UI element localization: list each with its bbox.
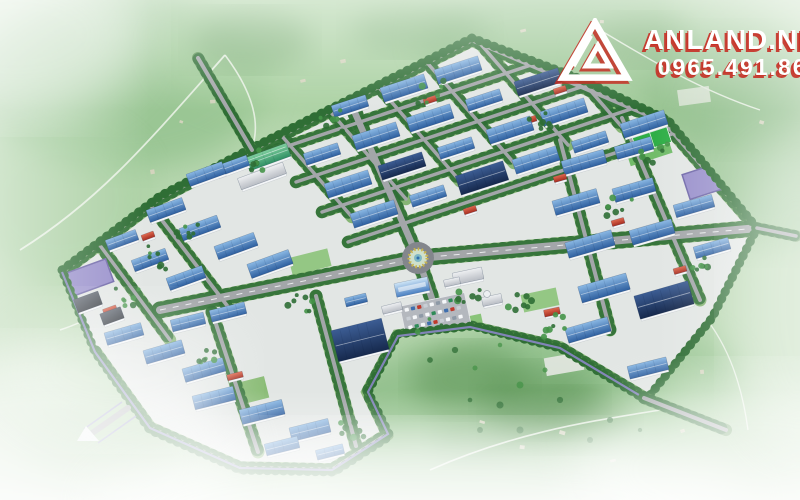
aerial-render: ANLAND.NET 0965.491.861 — [0, 0, 800, 500]
watermark-phone: 0965.491.861 — [658, 54, 800, 80]
roundabout — [402, 242, 434, 274]
anland-logo-icon — [556, 18, 634, 82]
watermark-brand: ANLAND.NET — [644, 26, 800, 54]
watermark: ANLAND.NET 0965.491.861 — [556, 18, 800, 82]
